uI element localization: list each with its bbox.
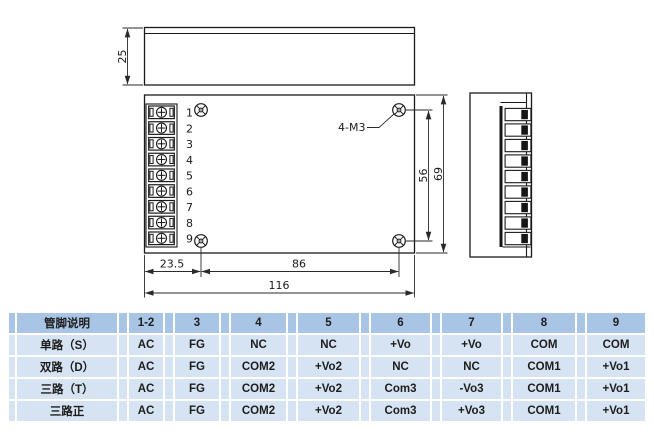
- spacer-cell: [432, 313, 440, 333]
- spacer-cell: [432, 401, 440, 421]
- spacer-cell: [9, 313, 15, 333]
- spacer-cell: [119, 357, 127, 377]
- spacer-cell: [9, 401, 15, 421]
- terminal-screw-icon: [149, 232, 175, 245]
- datasheet-page: 25 1 2 3 4 5 6 7 8 9 4-M3 56: [0, 0, 654, 440]
- dim-label-86: 86: [292, 258, 306, 271]
- row-label-cell: 单路（S）: [17, 335, 117, 355]
- header-cell: 6: [371, 313, 430, 333]
- spacer-cell: [577, 379, 585, 399]
- spacer-cell: [288, 357, 296, 377]
- row-label-cell: 双路（D）: [17, 357, 117, 377]
- side-view: [470, 93, 532, 257]
- spacer-cell: [288, 401, 296, 421]
- pin-number: 2: [186, 122, 193, 135]
- dim-top-height: 25: [116, 28, 143, 85]
- spacer-cell: [577, 401, 585, 421]
- terminal-screw-icon: [149, 153, 175, 166]
- terminal-side-icon: [505, 139, 531, 151]
- spacer-cell: [577, 313, 585, 333]
- spacer-cell: [9, 357, 15, 377]
- pin-table-section: 管脚说明 1-2 3 4 5 6 7 8 9 单路（S） AC FG: [7, 311, 647, 423]
- mounting-hole-icon: [195, 104, 208, 117]
- row-label-cell: 三路（T）: [17, 379, 117, 399]
- pin-cell: FG: [175, 357, 219, 377]
- terminal-screw-icon: [149, 138, 175, 151]
- spacer-cell: [165, 379, 173, 399]
- spacer-cell: [503, 401, 511, 421]
- pin-cell: Com3: [371, 401, 430, 421]
- mounting-hole-icon: [393, 235, 406, 248]
- dim-label-116: 116: [269, 279, 290, 292]
- dim-bottom: 23.5 86 116: [145, 248, 415, 298]
- mounting-hole-icon: [195, 235, 208, 248]
- pin-number: 8: [186, 217, 193, 230]
- spacer-cell: [361, 357, 369, 377]
- spacer-cell: [432, 379, 440, 399]
- spacer-cell: [165, 357, 173, 377]
- spacer-cell: [503, 313, 511, 333]
- terminal-side-icon: [505, 186, 531, 198]
- table-row-triple-positive: 三路正 AC FG COM2 +Vo2 Com3 +Vo3 COM1 +Vo1: [9, 401, 645, 421]
- spacer-cell: [288, 313, 296, 333]
- terminal-side-icon: [505, 217, 531, 229]
- table-row-dual: 双路（D） AC FG COM2 +Vo2 NC NC COM1 +Vo1: [9, 357, 645, 377]
- pin-cell: COM2: [231, 379, 286, 399]
- pin-cell: AC: [129, 335, 163, 355]
- spacer-cell: [503, 357, 511, 377]
- front-view: 1 2 3 4 5 6 7 8 9: [145, 95, 415, 253]
- terminal-screw-icon: [149, 169, 175, 182]
- pin-cell: +Vo2: [298, 401, 359, 421]
- spacer-cell: [165, 335, 173, 355]
- spacer-cell: [165, 401, 173, 421]
- terminal-screw-icon: [149, 185, 175, 198]
- pin-cell: NC: [231, 335, 286, 355]
- header-cell: 5: [298, 313, 359, 333]
- terminal-screw-icon: [149, 122, 175, 135]
- spacer-cell: [119, 401, 127, 421]
- pin-cell: FG: [175, 379, 219, 399]
- spacer-cell: [503, 379, 511, 399]
- terminal-screw-icon: [149, 106, 175, 119]
- dim-label-56: 56: [417, 169, 430, 183]
- header-cell: 9: [587, 313, 645, 333]
- spacer-cell: [119, 379, 127, 399]
- terminal-side-icon: [505, 155, 531, 167]
- pin-cell: NC: [442, 357, 501, 377]
- pin-number: 9: [186, 233, 193, 246]
- spacer-cell: [165, 313, 173, 333]
- pin-cell: -Vo3: [442, 379, 501, 399]
- pin-number: 5: [186, 170, 193, 183]
- header-cell: 4: [231, 313, 286, 333]
- pin-cell: AC: [129, 379, 163, 399]
- spacer-cell: [577, 335, 585, 355]
- pin-cell: FG: [175, 401, 219, 421]
- header-cell: 1-2: [129, 313, 163, 333]
- dim-label-23-5: 23.5: [160, 258, 185, 271]
- pin-cell: Com3: [371, 379, 430, 399]
- spacer-cell: [577, 357, 585, 377]
- pin-cell: +Vo: [371, 335, 430, 355]
- table-header-row: 管脚说明 1-2 3 4 5 6 7 8 9: [9, 313, 645, 333]
- spacer-cell: [288, 379, 296, 399]
- pin-cell: +Vo1: [587, 357, 645, 377]
- spacer-cell: [221, 401, 229, 421]
- spacer-cell: [361, 379, 369, 399]
- header-cell: 3: [175, 313, 219, 333]
- spacer-cell: [503, 335, 511, 355]
- terminal-side-icon: [505, 201, 531, 213]
- header-cell: 7: [442, 313, 501, 333]
- spacer-cell: [288, 335, 296, 355]
- pin-cell: COM: [587, 335, 645, 355]
- pin-cell: +Vo2: [298, 379, 359, 399]
- spacer-cell: [9, 335, 15, 355]
- terminal-side-icon: [505, 108, 531, 120]
- spacer-cell: [221, 379, 229, 399]
- table-row-triple: 三路（T） AC FG COM2 +Vo2 Com3 -Vo3 COM1 +Vo…: [9, 379, 645, 399]
- pin-cell: COM1: [513, 357, 575, 377]
- top-view: [145, 28, 415, 86]
- spacer-cell: [119, 313, 127, 333]
- pin-number: 7: [186, 201, 193, 214]
- pin-description-table: 管脚说明 1-2 3 4 5 6 7 8 9 单路（S） AC FG: [7, 311, 647, 423]
- side-terminal-rail: [500, 106, 503, 247]
- dim-label-69: 69: [432, 167, 445, 181]
- spacer-cell: [361, 401, 369, 421]
- pin-cell: COM1: [513, 401, 575, 421]
- pin-number: 4: [186, 154, 193, 167]
- spacer-cell: [9, 379, 15, 399]
- spacer-cell: [432, 335, 440, 355]
- terminal-screw-icon: [149, 201, 175, 214]
- pin-cell: +Vo3: [442, 401, 501, 421]
- terminal-screw-icon: [149, 216, 175, 229]
- spacer-cell: [361, 335, 369, 355]
- spacer-cell: [221, 357, 229, 377]
- pin-cell: COM2: [231, 401, 286, 421]
- spacer-cell: [361, 313, 369, 333]
- pin-number: 3: [186, 138, 193, 151]
- pin-cell: AC: [129, 357, 163, 377]
- header-cell: 8: [513, 313, 575, 333]
- pin-number: 6: [186, 185, 193, 198]
- pin-cell: NC: [298, 335, 359, 355]
- pin-number: 1: [186, 107, 193, 120]
- pin-cell: COM: [513, 335, 575, 355]
- pin-cell: AC: [129, 401, 163, 421]
- pin-cell: +Vo1: [587, 379, 645, 399]
- spacer-cell: [119, 335, 127, 355]
- pin-cell: NC: [371, 357, 430, 377]
- pin-cell: COM1: [513, 379, 575, 399]
- spacer-cell: [432, 357, 440, 377]
- terminal-side-icon: [505, 170, 531, 182]
- table-row-single: 单路（S） AC FG NC NC +Vo +Vo COM COM: [9, 335, 645, 355]
- row-label-cell: 三路正: [17, 401, 117, 421]
- header-cell: 管脚说明: [17, 313, 117, 333]
- screw-callout-label: 4-M3: [338, 121, 365, 134]
- spacer-cell: [221, 313, 229, 333]
- pin-cell: COM2: [231, 357, 286, 377]
- mounting-hole-icon: [393, 104, 406, 117]
- pin-cell: +Vo: [442, 335, 501, 355]
- terminal-side-icon: [505, 124, 531, 136]
- pin-cell: +Vo2: [298, 357, 359, 377]
- spacer-cell: [221, 335, 229, 355]
- dim-label-height-25: 25: [116, 50, 129, 64]
- pin-cell: FG: [175, 335, 219, 355]
- mechanical-drawing: 25 1 2 3 4 5 6 7 8 9 4-M3 56: [0, 0, 654, 308]
- terminal-side-icon: [505, 232, 531, 244]
- pin-cell: +Vo1: [587, 401, 645, 421]
